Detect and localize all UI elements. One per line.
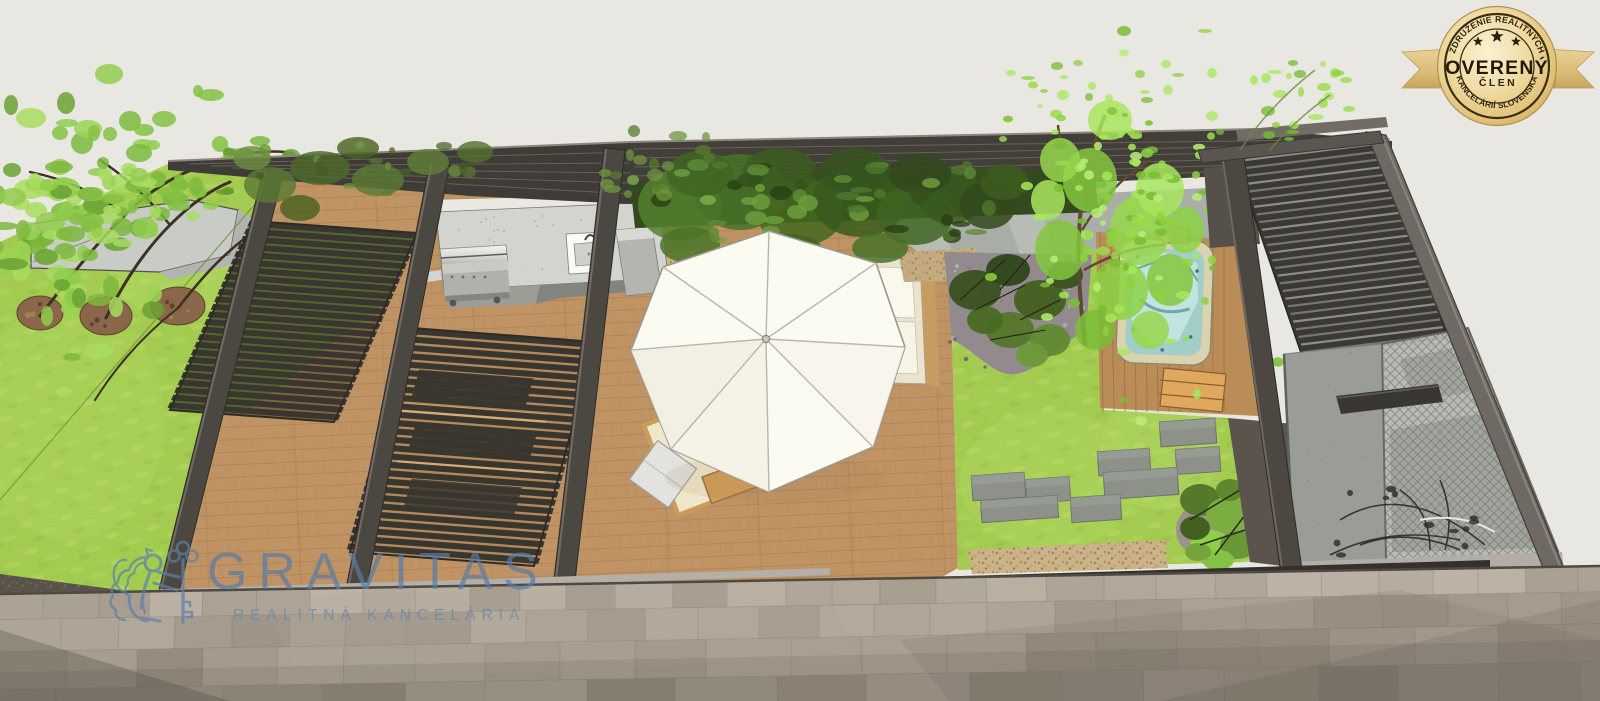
svg-text:OVERENÝ: OVERENÝ (1445, 55, 1549, 79)
svg-text:ČLEN: ČLEN (1479, 76, 1517, 89)
svg-text:REALITNÁ KANCELÁRIA: REALITNÁ KANCELÁRIA (233, 607, 525, 624)
svg-text:GRAVITAS: GRAVITAS (207, 543, 549, 601)
